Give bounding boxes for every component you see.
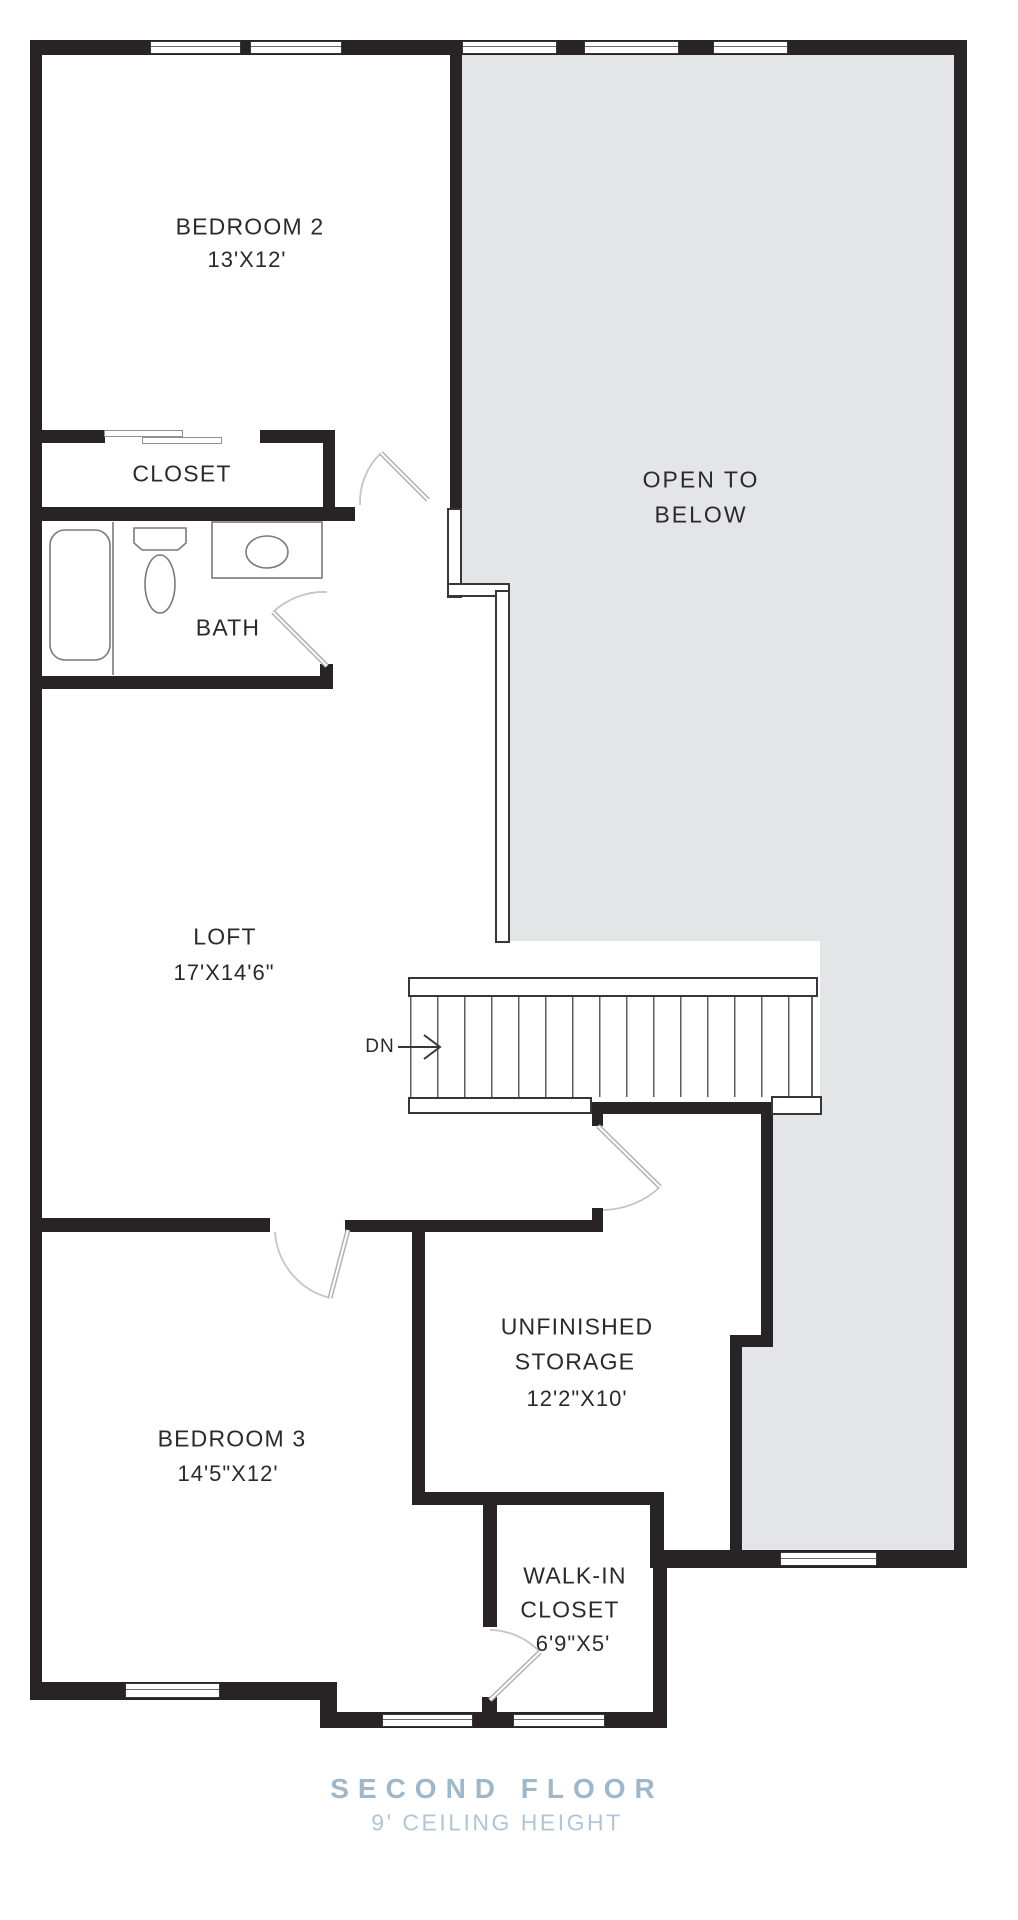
wall bbox=[730, 1335, 773, 1347]
wall bbox=[323, 1712, 667, 1728]
walkin-door-arc bbox=[490, 1630, 540, 1652]
wall bbox=[412, 1492, 664, 1505]
storage-door-leaf bbox=[598, 1126, 660, 1187]
bedroom3-door-arc bbox=[275, 1232, 330, 1298]
wall bbox=[30, 507, 355, 521]
stair-rail bbox=[408, 977, 818, 997]
open-to-below-area bbox=[767, 1110, 954, 1341]
window bbox=[584, 41, 679, 54]
room-label-open-to-below-1: OPEN TO bbox=[643, 467, 760, 494]
bathtub-icon bbox=[50, 530, 110, 660]
stair-rail bbox=[408, 1097, 592, 1114]
window bbox=[150, 41, 241, 54]
floor-title: SECOND FLOOR bbox=[330, 1773, 664, 1805]
window bbox=[125, 1683, 220, 1698]
room-label-walkin-1: WALK-IN bbox=[523, 1563, 626, 1590]
bedroom2-door-arc bbox=[360, 453, 381, 505]
toilet-tank-icon bbox=[134, 528, 186, 550]
wall bbox=[42, 1218, 270, 1232]
bath-door-arc bbox=[273, 592, 327, 612]
room-label-bedroom2: BEDROOM 2 bbox=[176, 214, 325, 241]
floor-plan: BEDROOM 2 13'X12' CLOSET BATH OPEN TO BE… bbox=[0, 0, 1018, 1920]
sink-basin-icon bbox=[246, 536, 288, 568]
room-label-loft: LOFT bbox=[193, 924, 257, 951]
room-dims-walkin: 6'9"X5' bbox=[536, 1631, 611, 1657]
stairs-dn-label: DN bbox=[365, 1036, 394, 1058]
storage-door-arc bbox=[603, 1187, 660, 1210]
window bbox=[513, 1714, 605, 1727]
wall bbox=[954, 40, 967, 1568]
window bbox=[382, 1714, 473, 1727]
room-dims-bedroom2: 13'X12' bbox=[207, 247, 286, 273]
window bbox=[713, 41, 788, 54]
bedroom3-door-leaf bbox=[330, 1230, 348, 1298]
room-dims-loft: 17'X14'6" bbox=[173, 960, 274, 986]
room-dims-storage: 12'2"X10' bbox=[526, 1386, 627, 1412]
room-label-storage-2: STORAGE bbox=[515, 1349, 635, 1376]
room-label-walkin-2: CLOSET bbox=[520, 1597, 619, 1624]
stair-rail bbox=[771, 1096, 822, 1115]
wall bbox=[345, 1220, 603, 1232]
wall bbox=[483, 1505, 497, 1627]
wall bbox=[323, 430, 335, 510]
loft-railing bbox=[495, 590, 510, 943]
room-label-storage-1: UNFINISHED bbox=[501, 1314, 654, 1341]
bedroom2-door-leaf bbox=[381, 453, 428, 500]
wall bbox=[592, 1102, 762, 1114]
wall bbox=[30, 40, 42, 1700]
window bbox=[780, 1552, 877, 1566]
wall bbox=[30, 430, 105, 443]
wall bbox=[761, 1102, 773, 1342]
sink-counter-icon bbox=[212, 522, 322, 578]
open-to-below-area bbox=[820, 590, 954, 1110]
open-to-below-area bbox=[510, 590, 820, 944]
walkin-door-leaf bbox=[490, 1652, 540, 1700]
toilet-bowl-icon bbox=[145, 555, 175, 613]
wall bbox=[30, 676, 333, 689]
closet-sliding-door bbox=[104, 430, 183, 437]
room-dims-bedroom3: 14'5"X12' bbox=[177, 1461, 278, 1487]
window bbox=[462, 41, 557, 54]
ceiling-height-subtitle: 9' CEILING HEIGHT bbox=[371, 1810, 622, 1837]
wall bbox=[653, 1565, 667, 1728]
bath-door-leaf bbox=[273, 612, 327, 666]
stair-treads bbox=[410, 997, 813, 1097]
wall bbox=[730, 1347, 742, 1552]
wall bbox=[412, 1220, 425, 1505]
wall bbox=[450, 55, 462, 510]
closet-sliding-door bbox=[142, 437, 222, 444]
room-label-open-to-below-2: BELOW bbox=[654, 502, 747, 529]
room-label-closet: CLOSET bbox=[132, 461, 231, 488]
window bbox=[250, 41, 342, 54]
wall bbox=[320, 664, 333, 689]
wall bbox=[592, 1114, 603, 1126]
room-label-bath: BATH bbox=[196, 615, 260, 642]
room-label-bedroom3: BEDROOM 3 bbox=[158, 1426, 307, 1453]
open-to-below-area bbox=[742, 1341, 954, 1550]
